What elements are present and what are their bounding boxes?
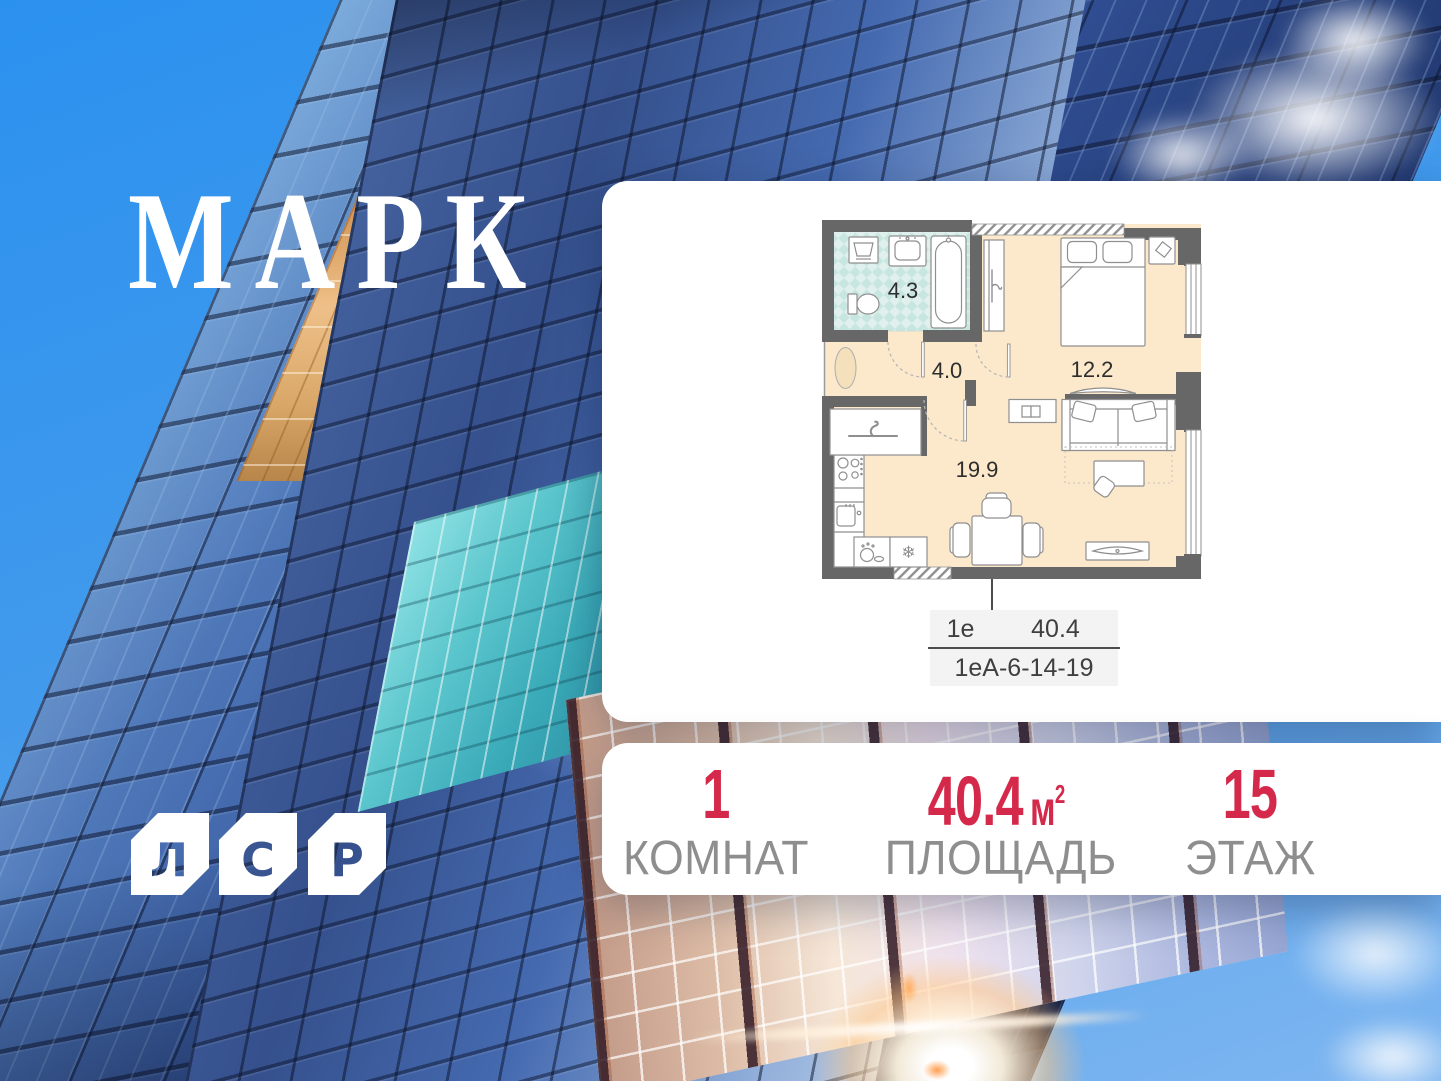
bedroom-area-label: 12.2 (1071, 357, 1114, 382)
unit-table-row: 1е 40.4 (930, 610, 1118, 647)
living-area-label: 19.9 (956, 457, 999, 482)
floor-value: 15 (1130, 759, 1370, 829)
unit-code-cell: 1еА-6-14-19 (930, 649, 1118, 686)
tv-stand-icon (1086, 542, 1149, 560)
unit-type-cell: 1е (930, 610, 991, 647)
floor-label: ЭТАЖ (1130, 831, 1370, 886)
rooms-label: КОМНАТ (596, 831, 836, 886)
sofa-icon (1062, 400, 1175, 451)
sun-glint (900, 972, 918, 1004)
developer-logo: Л С Р (131, 813, 391, 895)
pantry-icon (854, 537, 890, 567)
unit-stats-bar: 1 КОМНАТ 40.4м2 ПЛОЩАДЬ 15 ЭТАЖ (602, 743, 1441, 895)
sun-flare (760, 900, 1140, 1081)
hallway-rug (835, 348, 856, 389)
hatch-strip-bottom (894, 567, 951, 579)
real-estate-listing-banner: МАРК (0, 0, 1441, 1081)
unit-table-divider (928, 647, 1120, 649)
hatch-strip-top (972, 224, 1124, 235)
freezer-snowflake-icon: ❄ (901, 543, 915, 562)
bathtub-icon (931, 235, 966, 328)
area-label: ПЛОЩАДЬ (876, 831, 1116, 886)
area-value: 40.4м2 (876, 759, 1116, 829)
logo-cube-s: С (219, 813, 297, 895)
rooms-count: 1 (596, 759, 836, 829)
hallway-area-label: 4.0 (932, 358, 963, 383)
toilet-icon (848, 294, 879, 314)
floor-plan: ❄ 4.3 4.0 12.2 19.9 (810, 210, 1230, 590)
bathroom-area-label: 4.3 (888, 278, 919, 303)
bed-icon (1061, 238, 1145, 346)
unit-info-table: 1е 40.4 1еА-6-14-19 (930, 610, 1118, 686)
washing-machine-icon (849, 237, 878, 263)
logo-cube-r: Р (308, 813, 386, 895)
floor-plan-card: ❄ 4.3 4.0 12.2 19.9 1е 40.4 (602, 181, 1441, 722)
bookshelf-icon (1009, 400, 1056, 423)
closet-icon (984, 240, 1004, 331)
sink-icon (889, 236, 926, 266)
nightstand-icon (1149, 237, 1175, 264)
sun-glint (923, 1060, 951, 1080)
wardrobe-icon (830, 409, 921, 455)
unit-area-cell: 40.4 (993, 610, 1118, 647)
project-title: МАРК (128, 172, 547, 312)
logo-cube-l: Л (131, 813, 209, 895)
